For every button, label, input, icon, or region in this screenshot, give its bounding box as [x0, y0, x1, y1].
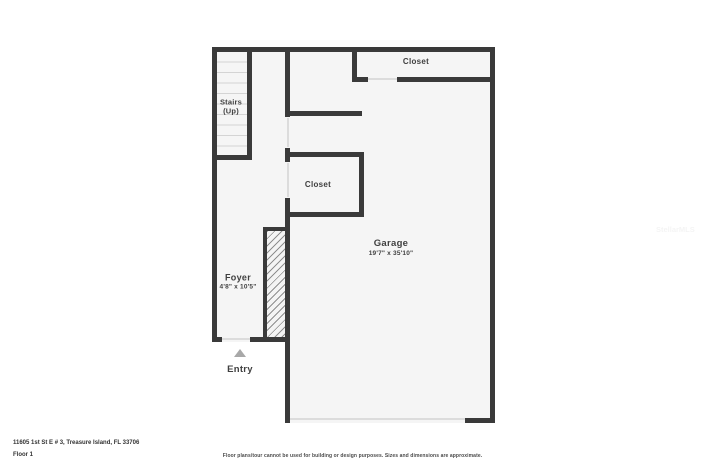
- wall-right: [490, 47, 495, 423]
- door-topcloset-line: [368, 78, 397, 80]
- wall-left: [212, 47, 217, 342]
- room-label-closet-top: Closet: [403, 57, 429, 67]
- wall-midcloset-top: [285, 152, 364, 157]
- door-garage-hall-line: [287, 118, 289, 147]
- wall-hatch-left: [263, 227, 267, 342]
- entry-label: Entry: [227, 364, 253, 375]
- wall-center-upper: [285, 47, 290, 117]
- garage-door-line: [290, 418, 465, 420]
- garage-dimensions: 19'7" x 35'10": [369, 250, 414, 258]
- stairs-label-line2: (Up): [220, 107, 242, 116]
- wall-nook-bottom: [290, 111, 362, 116]
- room-label-foyer: Foyer 4'8" x 10'5": [220, 272, 257, 291]
- stairs-label-line1: Stairs: [220, 98, 242, 107]
- wall-stairs-bottom: [217, 155, 252, 160]
- foyer-label: Foyer: [220, 272, 257, 283]
- floor-area-garage: [285, 47, 495, 423]
- room-label-stairs: Stairs (Up): [220, 98, 242, 117]
- wall-foyer-bottom-left: [212, 337, 222, 342]
- wall-midcloset-bottom: [285, 212, 364, 217]
- garage-label: Garage: [369, 238, 414, 250]
- closet-top-label: Closet: [403, 57, 429, 66]
- wall-midcloset-right: [359, 152, 364, 217]
- wall-topcloset-bottom-right: [397, 77, 490, 82]
- wall-hatch-top: [263, 227, 285, 231]
- footer-disclaimer: Floor plans/tour cannot be used for buil…: [0, 453, 705, 459]
- entry-arrow-icon: [234, 349, 246, 357]
- closet-mid-label: Closet: [305, 180, 331, 189]
- wall-foyer-bottom-right: [250, 337, 290, 342]
- wall-topcloset-bottom-left: [352, 77, 368, 82]
- foyer-dimensions: 4'8" x 10'5": [220, 284, 257, 292]
- hatched-area: [267, 231, 285, 337]
- watermark: StellarMLS: [656, 225, 695, 234]
- entry-label-wrap: Entry: [227, 364, 253, 376]
- room-label-closet-mid: Closet: [305, 180, 331, 190]
- footer-address: 11605 1st St E # 3, Treasure Island, FL …: [13, 440, 139, 446]
- wall-garage-bottom-right: [465, 418, 495, 423]
- wall-stairs-right: [247, 52, 252, 160]
- wall-center-lower: [285, 198, 290, 423]
- floor-plan-page: Closet Stairs (Up) Closet Garage 19'7" x…: [0, 0, 705, 469]
- door-midcloset-line: [287, 163, 289, 197]
- entry-door-line: [222, 338, 250, 340]
- room-label-garage: Garage 19'7" x 35'10": [369, 238, 414, 258]
